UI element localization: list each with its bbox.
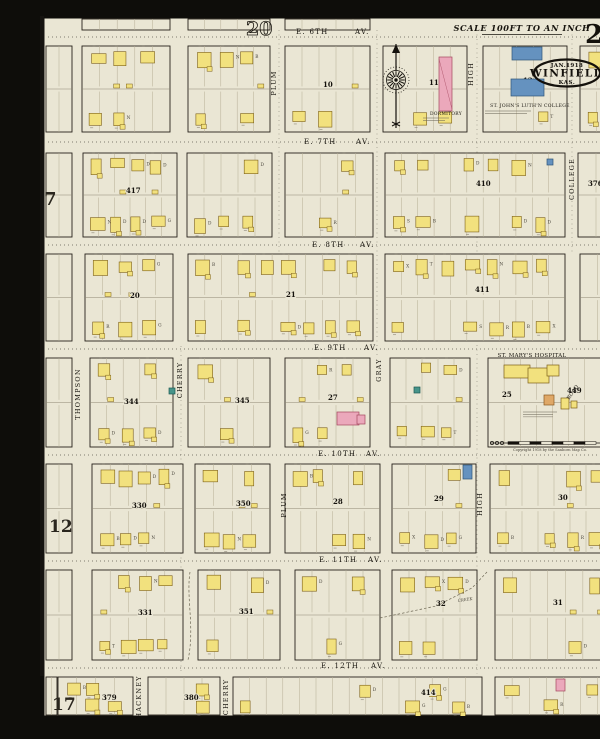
- building-frame: [204, 533, 219, 547]
- building-frame: [400, 533, 410, 544]
- building-frame: [319, 111, 332, 127]
- building-wing: [205, 275, 210, 280]
- hospital-building: [547, 365, 559, 376]
- lot-number-mark: [466, 234, 469, 235]
- building-wing: [349, 170, 354, 175]
- building-frame: [220, 52, 233, 67]
- building-frame: [442, 261, 454, 276]
- lot-number-mark: [454, 715, 457, 716]
- building-frame: [243, 535, 256, 547]
- lot-number-mark: [318, 358, 321, 359]
- building-wing: [105, 439, 110, 444]
- building-frame: [196, 114, 205, 125]
- house-code: D: [465, 580, 469, 585]
- block-number: 25: [502, 390, 512, 399]
- shed: [357, 398, 363, 402]
- building-wing: [100, 334, 105, 339]
- shed: [101, 610, 107, 614]
- lot-number-mark: [426, 550, 429, 551]
- lot-number-mark: [400, 656, 403, 657]
- building-frame: [99, 429, 109, 440]
- lot-number-mark: [244, 230, 247, 231]
- lot-number-mark: [139, 653, 142, 654]
- building-frame: [545, 534, 554, 544]
- city-block: DDBDN330: [92, 464, 183, 553]
- scale-statement: SCALE 100FT TO AN INCH: [453, 23, 590, 33]
- building-frame: [138, 639, 153, 650]
- building-wing: [106, 650, 111, 655]
- building-frame: [92, 54, 106, 64]
- lot-number-mark: [132, 234, 135, 235]
- lot-number-mark: [87, 713, 90, 714]
- shed: [108, 398, 114, 402]
- block-number: 21: [286, 290, 296, 299]
- block-number: 27: [328, 393, 338, 402]
- lot-number-mark: [239, 334, 242, 335]
- building-frame: [360, 685, 371, 697]
- building-frame: [293, 428, 303, 443]
- brick-building: [357, 415, 365, 424]
- building-wing: [352, 273, 357, 278]
- house-code: B: [255, 55, 258, 60]
- house-code: N: [154, 579, 158, 584]
- building-frame: [91, 159, 101, 175]
- block-number: 344: [124, 397, 139, 406]
- lot-number-mark: [303, 570, 306, 571]
- building-frame: [138, 472, 150, 484]
- building-wing: [125, 588, 130, 593]
- city-block: [580, 254, 600, 341]
- building-frame: [448, 469, 460, 480]
- building-frame: [453, 702, 465, 713]
- city-block: DNSBDD410: [385, 153, 565, 237]
- lot-number-mark: [353, 570, 356, 571]
- copyright-line: Copyright 1918 by the Sanborn Map Co.: [513, 448, 587, 452]
- lot-number-mark: [537, 335, 540, 336]
- lot-number-mark: [122, 655, 125, 656]
- building-frame: [158, 640, 167, 649]
- adjacent-sheet-ref: 20: [246, 18, 272, 40]
- building-wing: [245, 273, 250, 278]
- building-frame: [324, 260, 335, 271]
- shed: [120, 190, 126, 194]
- lot-number-mark: [90, 127, 93, 128]
- building-frame: [416, 259, 427, 274]
- shed: [224, 398, 230, 402]
- building-wing: [106, 375, 111, 380]
- building-frame: [241, 114, 254, 123]
- lot-number-mark: [294, 445, 297, 446]
- building-wing: [356, 331, 361, 336]
- lot-number-mark: [590, 547, 593, 548]
- lot-number-mark: [354, 464, 357, 465]
- house-code: G: [305, 431, 309, 436]
- building-frame: [243, 216, 253, 228]
- building-frame: [195, 219, 206, 234]
- building-frame: [203, 470, 218, 482]
- building-wing: [204, 695, 209, 700]
- city-block: N350: [195, 464, 270, 553]
- building-frame: [244, 160, 258, 174]
- brick-building: [337, 412, 359, 425]
- city-block: 376: [578, 153, 600, 237]
- lot-number-mark: [123, 444, 126, 445]
- lot-number-mark: [465, 333, 468, 334]
- shed: [126, 84, 132, 88]
- building-frame: [465, 260, 479, 270]
- lot-number-mark: [401, 545, 404, 546]
- city-block: N: [82, 46, 170, 132]
- lot-number-mark: [120, 254, 123, 255]
- city-block: [46, 464, 72, 553]
- building-wing: [436, 586, 441, 591]
- building-frame: [111, 217, 121, 232]
- building-frame: [143, 260, 155, 271]
- lot-number-mark: [221, 46, 224, 47]
- lot-number-mark: [197, 127, 200, 128]
- block-number: 350: [236, 499, 251, 508]
- street-label-plum: PLUM: [270, 70, 278, 95]
- house-code: B: [116, 537, 119, 542]
- house-code: D: [208, 222, 212, 227]
- building-wing: [201, 124, 206, 129]
- building-frame: [318, 428, 327, 439]
- lot-number-mark: [348, 334, 351, 335]
- lot-number-mark: [205, 549, 208, 550]
- street-label-plum: PLUM: [280, 492, 288, 517]
- lot-number-mark: [204, 464, 207, 465]
- house-code: D: [441, 538, 445, 543]
- lot-number-mark: [445, 358, 448, 359]
- city-block: [46, 358, 72, 447]
- lot-number-mark: [422, 439, 425, 440]
- building-frame: [327, 639, 336, 654]
- building-wing: [207, 67, 212, 72]
- lot-number-mark: [94, 254, 97, 255]
- building-frame: [465, 216, 479, 232]
- shed: [267, 610, 273, 614]
- building-wing: [128, 271, 133, 276]
- lot-number-mark: [282, 254, 285, 255]
- building-frame: [395, 161, 405, 171]
- building-frame: [464, 322, 477, 331]
- building-frame: [342, 365, 351, 375]
- lot-number-mark: [196, 336, 199, 337]
- lot-number-mark: [488, 254, 491, 255]
- building-frame: [198, 52, 212, 67]
- lot-number-mark: [142, 46, 145, 47]
- building-frame: [98, 364, 110, 376]
- street-label-hackney: HACKNEY: [135, 675, 143, 718]
- building-wing: [401, 227, 406, 232]
- building-frame: [93, 322, 104, 335]
- lot-number-mark: [417, 229, 420, 230]
- lot-number-mark: [160, 464, 163, 465]
- lot-number-mark: [199, 46, 202, 47]
- landmark-label: ST. MARY'S HOSPITAL: [498, 353, 567, 359]
- lot-number-mark: [197, 715, 200, 716]
- lot-number-mark: [91, 232, 94, 233]
- adjacent-sheet-ref: 12: [49, 517, 73, 537]
- street-label-thompson: THOMPSON: [74, 368, 82, 419]
- street-label-gray: GRAY: [375, 358, 383, 382]
- city-block: DD: [187, 153, 272, 237]
- block-number: 32: [436, 599, 446, 608]
- lot-number-mark: [328, 656, 331, 657]
- lot-number-mark: [224, 551, 227, 552]
- lot-number-mark: [141, 570, 144, 571]
- building-frame: [425, 577, 439, 588]
- building-wing: [318, 482, 323, 487]
- block-number: 417: [126, 186, 141, 195]
- building-frame: [512, 322, 524, 337]
- building-frame: [144, 428, 156, 438]
- lot-number-mark: [244, 549, 247, 550]
- lot-number-mark: [513, 153, 516, 154]
- lot-number-mark: [348, 254, 351, 255]
- lot-number-mark: [466, 254, 469, 255]
- house-code: T: [550, 115, 553, 120]
- lot-number-mark: [115, 46, 118, 47]
- lot-number-mark: [245, 153, 248, 154]
- building-frame: [418, 160, 429, 170]
- lot-number-mark: [546, 546, 549, 547]
- lot-number-mark: [252, 570, 255, 571]
- building-frame: [207, 640, 218, 652]
- building-wing: [299, 442, 304, 447]
- building-wing: [129, 441, 134, 446]
- lot-number-mark: [465, 153, 468, 154]
- edge-top: [40, 16, 600, 19]
- building-wing: [416, 712, 421, 717]
- lot-number-mark: [314, 464, 317, 465]
- building-frame: [119, 262, 131, 272]
- lot-number-mark: [92, 153, 95, 154]
- building-frame: [100, 641, 110, 650]
- lot-number-mark: [394, 230, 397, 231]
- house-code: D: [153, 475, 157, 480]
- lot-number-mark: [569, 549, 572, 550]
- building-wing: [95, 710, 100, 715]
- house-code: N: [500, 263, 504, 268]
- building-wing: [120, 125, 125, 130]
- building-frame: [448, 577, 463, 589]
- building-wing: [291, 330, 296, 335]
- house-code: B: [511, 536, 514, 541]
- lot-number-mark: [334, 548, 337, 549]
- house-code: B: [310, 475, 313, 480]
- building-frame: [245, 471, 254, 485]
- building-wing: [360, 590, 365, 595]
- street-label-college: COLLEGE: [568, 158, 576, 200]
- building-frame: [505, 686, 520, 696]
- building-frame: [353, 472, 362, 485]
- building-frame: [281, 260, 295, 274]
- lot-number-mark: [588, 697, 591, 698]
- lot-number-mark: [591, 570, 594, 571]
- city-block: 10: [285, 46, 370, 132]
- house-code: B: [212, 263, 215, 268]
- building-frame: [219, 216, 229, 227]
- lot-number-mark: [100, 442, 103, 443]
- lot-number-mark: [220, 229, 223, 230]
- block-number: 331: [138, 608, 153, 617]
- building-wing: [476, 269, 481, 274]
- building-wing: [116, 231, 121, 236]
- sanborn-map-sheet: NNB1011T12DDDDDNDDG417DDRDNSBDD410376GRG…: [40, 16, 600, 723]
- lot-number-mark: [87, 697, 90, 698]
- building-wing: [136, 231, 141, 236]
- hospital-outbuilding: [571, 401, 577, 408]
- building-frame: [499, 471, 510, 486]
- house-code: T: [453, 431, 456, 436]
- lot-number-mark: [327, 336, 330, 337]
- lot-number-mark: [242, 46, 245, 47]
- shed: [105, 293, 111, 297]
- lot-number-mark: [320, 129, 323, 130]
- building-frame: [347, 321, 360, 332]
- building-frame: [441, 428, 451, 438]
- building-frame: [536, 218, 545, 233]
- block-number: 414: [421, 688, 436, 697]
- lot-number-mark: [262, 254, 265, 255]
- lot-number-mark: [500, 464, 503, 465]
- building-frame: [313, 470, 322, 483]
- lot-number-mark: [112, 153, 115, 154]
- lot-number-mark: [506, 698, 509, 699]
- building-wing: [291, 273, 296, 278]
- city-block: D351: [198, 570, 280, 660]
- lot-number-mark: [540, 123, 543, 124]
- lot-number-mark: [398, 438, 401, 439]
- building-wing: [249, 227, 254, 232]
- building-frame: [397, 426, 406, 435]
- building-frame: [131, 217, 140, 232]
- building-frame: [195, 321, 205, 334]
- edge-left: [40, 16, 44, 723]
- lot-number-mark: [241, 715, 244, 716]
- building-frame: [421, 426, 434, 437]
- building-frame: [281, 322, 295, 331]
- lot-number-mark: [440, 125, 443, 126]
- lot-number-mark: [282, 333, 285, 334]
- lot-number-mark: [424, 656, 427, 657]
- building-frame: [423, 642, 435, 654]
- building-frame: [487, 260, 497, 275]
- lot-number-mark: [144, 337, 147, 338]
- shed: [152, 190, 158, 194]
- building-frame: [444, 365, 457, 374]
- building-frame: [196, 701, 209, 713]
- house-code: G: [443, 688, 447, 693]
- house-code: N: [151, 536, 155, 541]
- lot-number-mark: [449, 570, 452, 571]
- building-frame: [251, 578, 263, 593]
- lot-number-mark: [443, 254, 446, 255]
- house-code: G: [158, 323, 162, 328]
- block-outline: [82, 19, 170, 30]
- building-frame: [588, 112, 597, 123]
- lot-number-mark: [221, 442, 224, 443]
- building-frame: [119, 322, 132, 337]
- lot-number-mark: [294, 124, 297, 125]
- lot-number-mark: [102, 464, 105, 465]
- building-frame: [536, 321, 550, 332]
- lot-number-mark: [146, 358, 149, 359]
- street-label-high: HIGH: [467, 62, 475, 86]
- building-frame: [326, 321, 336, 334]
- building-frame: [590, 578, 600, 594]
- lot-number-mark: [406, 715, 409, 716]
- house-code: S: [479, 325, 482, 330]
- shed: [570, 610, 576, 614]
- block-number: 411: [475, 285, 490, 294]
- house-code: B: [83, 686, 86, 691]
- building-frame: [512, 216, 521, 227]
- building-frame: [132, 160, 144, 171]
- house-code: T: [112, 644, 115, 649]
- city-block: [46, 46, 72, 132]
- building-frame: [138, 533, 148, 544]
- lot-number-mark: [160, 570, 163, 571]
- city-block: DT: [390, 358, 470, 447]
- lot-number-mark: [431, 699, 434, 700]
- house-code: N: [127, 116, 131, 121]
- lot-number-mark: [489, 153, 492, 154]
- building-frame: [589, 533, 600, 546]
- building-wing: [400, 170, 405, 175]
- city-block: XBR30: [490, 464, 600, 553]
- building-frame: [353, 534, 365, 548]
- block-number: 330: [132, 501, 147, 510]
- lot-number-mark: [393, 334, 396, 335]
- avenue-label: E. 10THAV.: [318, 450, 381, 458]
- lot-number-mark: [442, 439, 445, 440]
- building-frame: [416, 217, 430, 228]
- lot-number-mark: [354, 551, 357, 552]
- building-frame: [591, 471, 600, 482]
- lot-number-mark: [112, 234, 115, 235]
- college-building-north: [512, 47, 542, 60]
- block-number: 28: [333, 497, 343, 506]
- building-wing: [493, 274, 498, 279]
- compass-hub: [394, 78, 397, 81]
- scale-bar-segment: [530, 442, 541, 445]
- lot-number-mark: [568, 464, 571, 465]
- building-wing: [541, 231, 546, 236]
- building-frame: [220, 429, 233, 440]
- scale-bar-segment: [574, 442, 585, 445]
- lot-number-mark: [545, 712, 548, 713]
- building-frame: [503, 578, 516, 593]
- block-number: 30: [558, 493, 568, 502]
- lot-number-mark: [139, 464, 142, 465]
- lot-number-mark: [121, 547, 124, 548]
- building-frame: [101, 534, 114, 546]
- lot-number-mark: [145, 440, 148, 441]
- building-frame: [150, 161, 161, 174]
- building-frame: [498, 533, 509, 544]
- building-frame: [141, 52, 155, 63]
- lot-number-mark: [422, 358, 425, 359]
- lot-number-mark: [343, 358, 346, 359]
- city-block: GRG20: [85, 254, 173, 341]
- building-wing: [437, 696, 442, 701]
- building-frame: [196, 260, 210, 276]
- lot-number-mark: [159, 651, 162, 652]
- hospital-building: [504, 365, 530, 378]
- lot-number-mark: [325, 254, 328, 255]
